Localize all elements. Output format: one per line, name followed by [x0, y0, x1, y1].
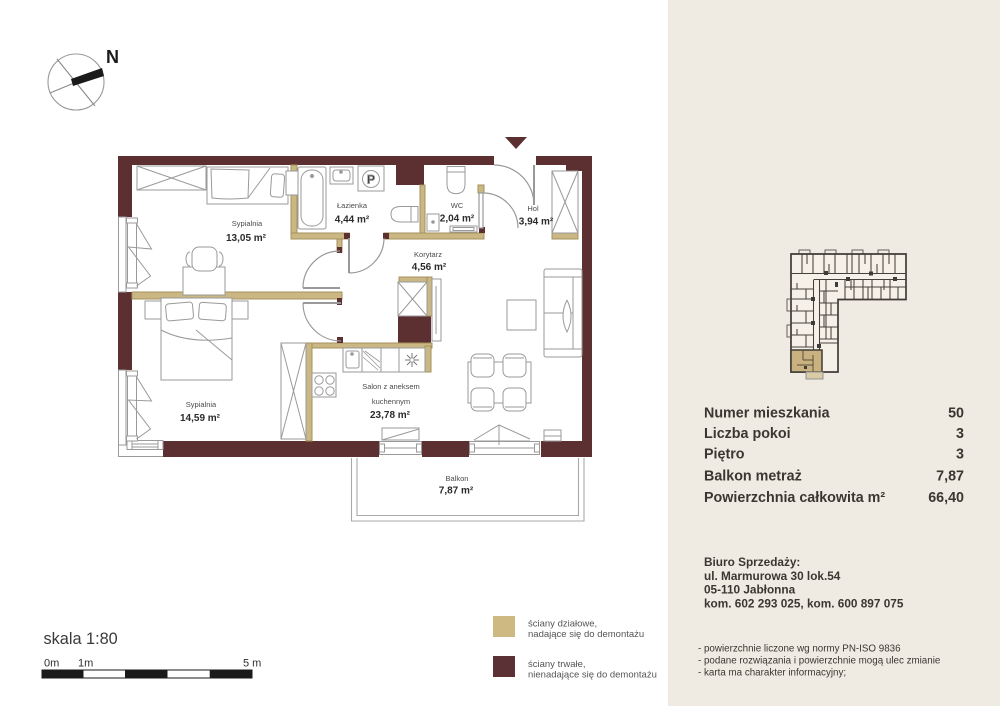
svg-text:Sypialnia: Sypialnia: [186, 400, 217, 409]
svg-text:ściany działowe,: ściany działowe,: [528, 619, 597, 630]
svg-text:14,59 m²: 14,59 m²: [180, 413, 221, 424]
svg-text:- powierzchnie liczone wg norm: - powierzchnie liczone wg normy PN-ISO 9…: [698, 644, 901, 655]
svg-text:N: N: [106, 47, 119, 67]
svg-text:skala 1:80: skala 1:80: [44, 630, 118, 648]
svg-text:66,40: 66,40: [928, 490, 964, 506]
svg-text:Powierzchnia całkowita m²: Powierzchnia całkowita m²: [704, 490, 885, 506]
svg-text:Salon z aneksem: Salon z aneksem: [362, 382, 420, 391]
svg-text:13,05 m²: 13,05 m²: [226, 233, 267, 244]
svg-text:Balkon metraż: Balkon metraż: [704, 469, 802, 485]
svg-text:Numer mieszkania: Numer mieszkania: [704, 406, 831, 422]
svg-text:kuchennym: kuchennym: [372, 397, 410, 406]
svg-text:5 m: 5 m: [243, 658, 261, 670]
svg-text:nienadające się do demontażu: nienadające się do demontażu: [528, 670, 657, 681]
svg-text:Korytarz: Korytarz: [414, 250, 442, 259]
svg-text:4,44 m²: 4,44 m²: [335, 215, 370, 226]
svg-text:ściany trwałe,: ściany trwałe,: [528, 659, 586, 670]
svg-text:1m: 1m: [78, 658, 93, 670]
svg-text:0m: 0m: [44, 658, 59, 670]
svg-text:Hol: Hol: [527, 204, 539, 213]
svg-text:Piętro: Piętro: [704, 447, 745, 463]
svg-text:- karta ma charakter informacy: - karta ma charakter informacyjny;: [698, 668, 846, 679]
svg-text:50: 50: [948, 406, 964, 422]
svg-text:ul. Marmurowa 30 lok.54: ul. Marmurowa 30 lok.54: [704, 569, 841, 583]
svg-text:3: 3: [956, 426, 964, 442]
svg-text:P: P: [367, 173, 375, 187]
svg-text:nadające się do demontażu: nadające się do demontażu: [528, 629, 644, 640]
svg-text:2,04 m²: 2,04 m²: [440, 214, 475, 225]
svg-text:kom. 602 293 025, kom. 600 897: kom. 602 293 025, kom. 600 897 075: [704, 596, 904, 610]
svg-text:Sypialnia: Sypialnia: [232, 219, 263, 228]
svg-text:WC: WC: [451, 201, 464, 210]
svg-text:Łazienka: Łazienka: [337, 201, 368, 210]
svg-text:05-110 Jabłonna: 05-110 Jabłonna: [704, 583, 796, 597]
svg-text:Liczba pokoi: Liczba pokoi: [704, 426, 791, 442]
svg-text:23,78 m²: 23,78 m²: [370, 410, 411, 421]
svg-text:4,56 m²: 4,56 m²: [412, 262, 447, 273]
svg-text:3: 3: [956, 447, 964, 463]
svg-text:3,94 m²: 3,94 m²: [519, 217, 554, 228]
svg-text:7,87 m²: 7,87 m²: [439, 486, 474, 497]
svg-text:Balkon: Balkon: [446, 474, 469, 483]
svg-text:7,87: 7,87: [936, 469, 964, 485]
svg-text:Biuro Sprzedaży:: Biuro Sprzedaży:: [704, 555, 800, 569]
svg-text:- podane rozwiązania i powierz: - podane rozwiązania i powierzchnie mogą…: [698, 656, 941, 667]
